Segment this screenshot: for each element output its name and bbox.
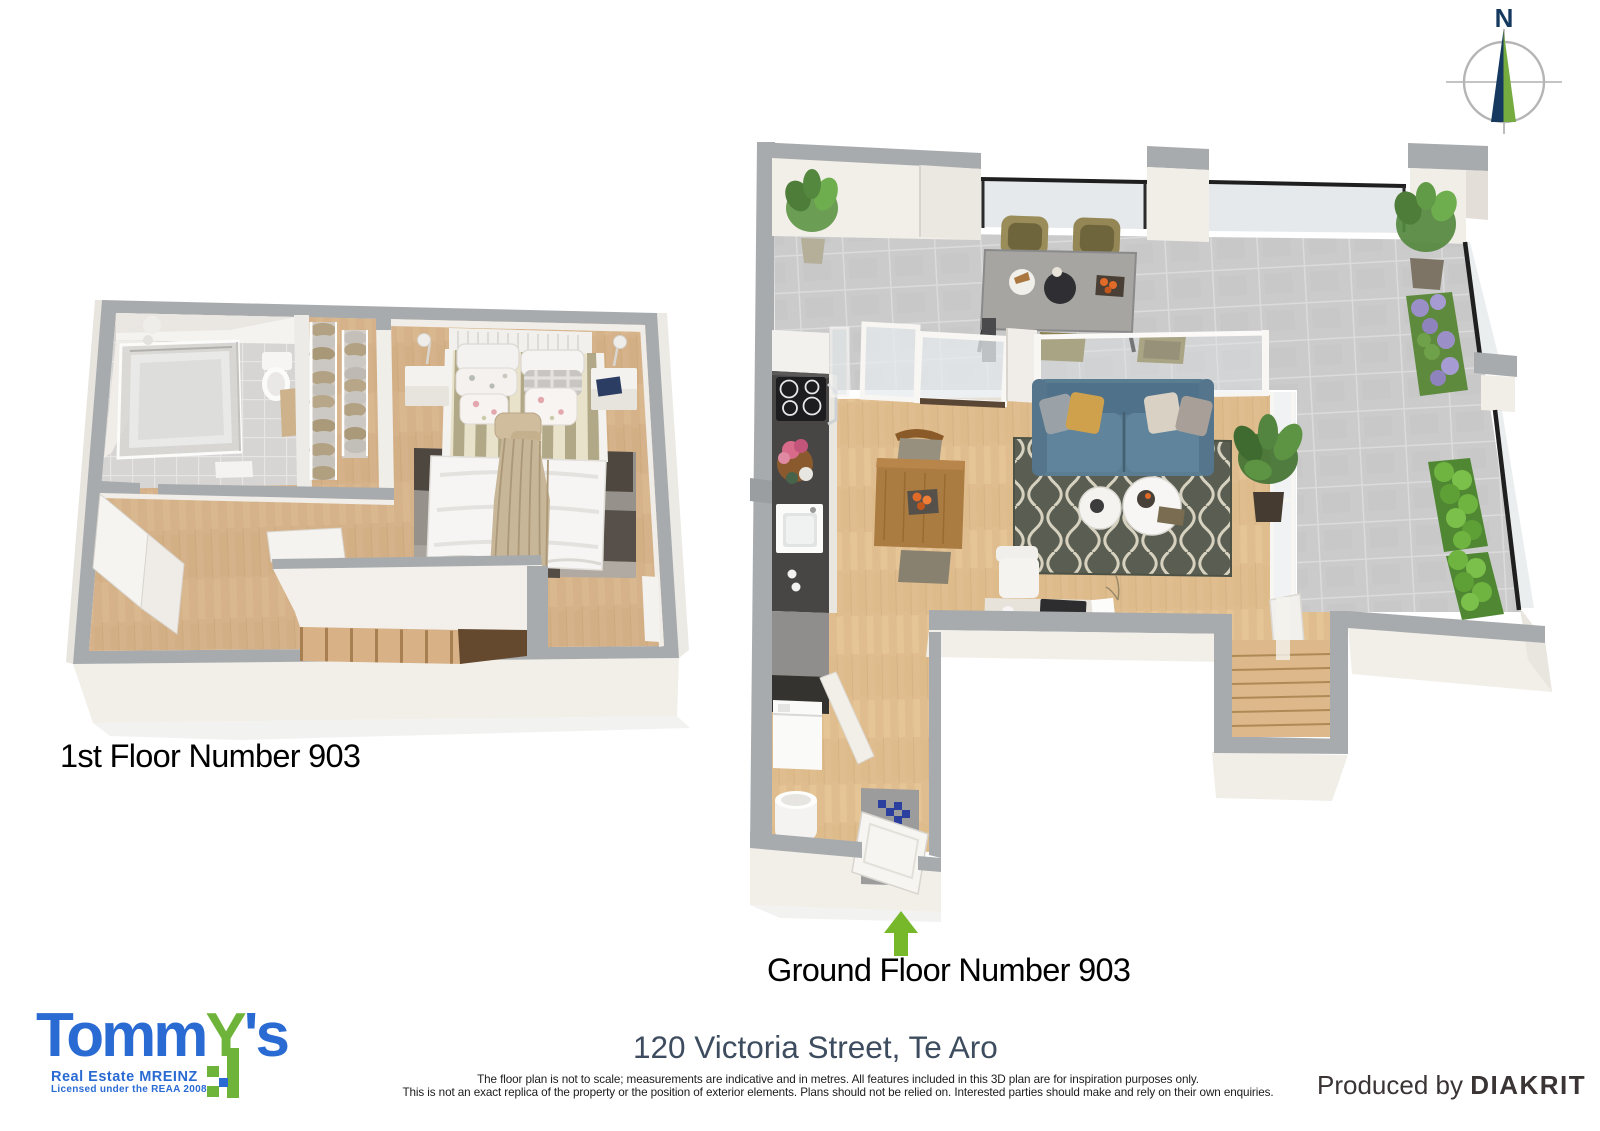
svg-text:N: N — [1495, 3, 1514, 33]
